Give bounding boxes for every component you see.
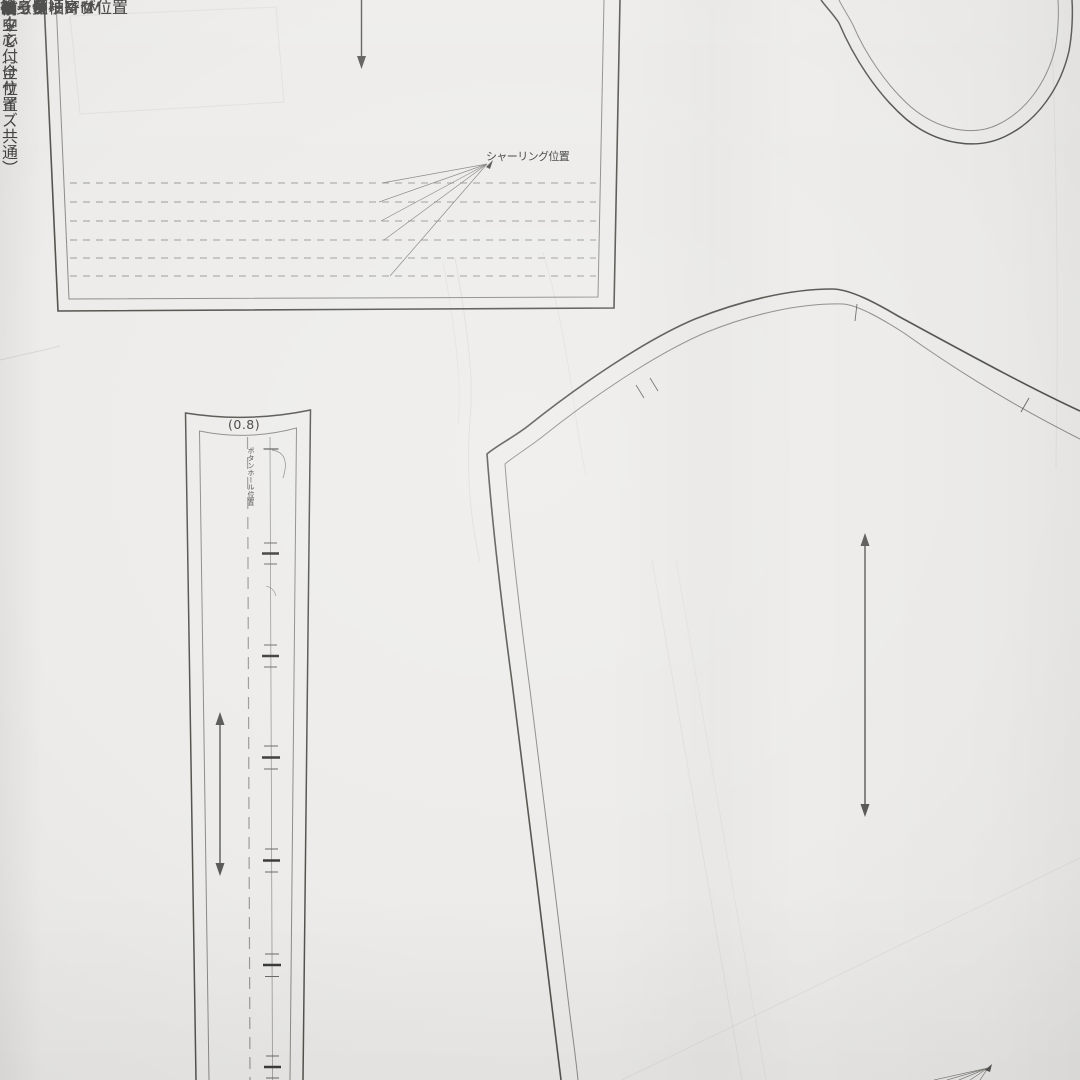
sleeve-shirring-leaders (934, 1068, 988, 1080)
sleeve-grainline-arrow (861, 533, 870, 817)
button-attach-leader (272, 450, 285, 478)
placket-name-sub: （全サイズ共通） (0, 48, 18, 176)
arrow-up-icon (216, 712, 225, 725)
arrow-down-icon (216, 863, 225, 876)
buttonhole-position-label: ボタンホール位置 (247, 447, 254, 505)
bleed-through-lines (0, 7, 1080, 1080)
center-front-fold-line (248, 437, 251, 1080)
arrow-down-icon (861, 804, 870, 817)
sleeve-notches (636, 304, 1029, 412)
bleed-yoke-outline (70, 7, 284, 114)
placket-grainline-arrow (216, 712, 225, 876)
placket-piece (186, 410, 311, 1080)
neckline-cut-line (821, 0, 1072, 144)
sleeve-seam-line (505, 304, 1080, 1080)
bleed-curve-left2 (443, 262, 459, 424)
pattern-sheet: シャーリング位置 (0.8) ボタンホール位置 ボタン付け位置 前立て（全サイズ… (0, 0, 1080, 1080)
bleed-curve-mid (543, 252, 586, 474)
neckline-piece (821, 0, 1072, 144)
bleed-front-bodice-label: 前身頃 M (0, 0, 78, 16)
placket-seam-allowance-value: (0.8) (228, 419, 260, 432)
sleeve-cut-line (487, 289, 1080, 1080)
bleed-gather-leader (0, 346, 60, 360)
yoke-grainline-arrow (357, 0, 366, 69)
bleed-line-sleeve2 (676, 560, 766, 1080)
shirring-leader-lines (379, 164, 487, 276)
neckline-seam-line (839, 0, 1058, 131)
sleeve-piece (487, 289, 1080, 1080)
bleed-line-bottomright (622, 858, 1080, 1080)
bleed-line-sleeve1 (652, 560, 742, 1080)
shirring-position-label-top: シャーリング位置 (486, 151, 569, 162)
arrow-down-icon (357, 56, 366, 69)
bleed-line-topright (1052, 38, 1057, 468)
shirring-stitch-lines (70, 183, 596, 276)
arrow-up-icon (861, 533, 870, 546)
